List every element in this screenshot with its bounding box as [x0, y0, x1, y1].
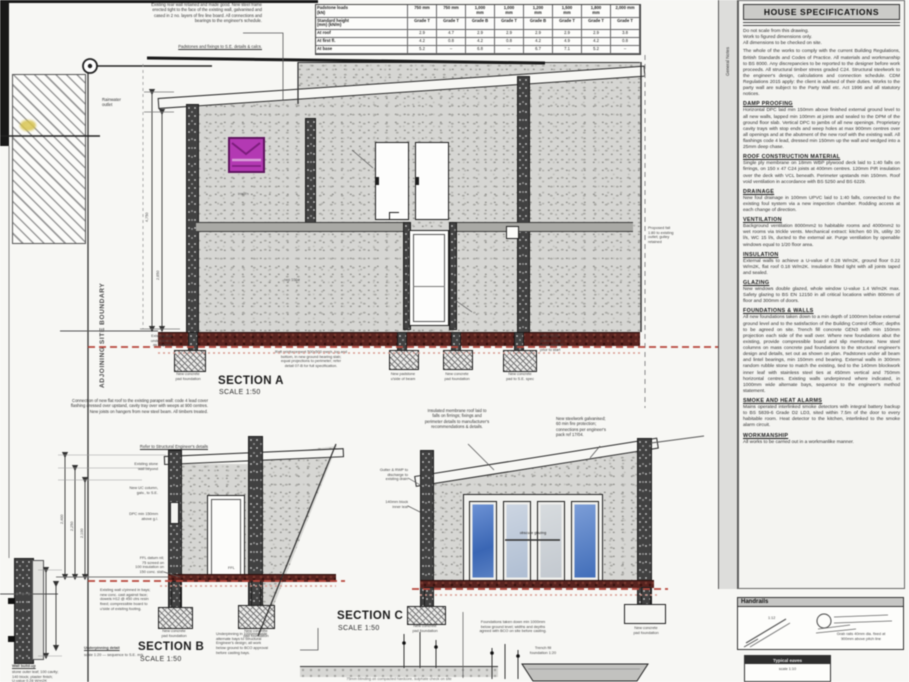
spec-paragraph: Mains operated interlinked smoke detecto… — [743, 405, 900, 430]
slab-note: Raft reinforcement 500x500 mesh, top and… — [252, 350, 370, 369]
underpin-wall-strip — [14, 558, 34, 664]
fall-note: Proposed fall 1:80 to existing outlet; g… — [648, 226, 714, 245]
handrail-detail-box: Handrails 1:12 Grab rails 40mm dia. fixe… — [737, 597, 904, 650]
table-row: At roof2.94.72.92.92.92.92.93.8 — [316, 30, 640, 38]
notes-spine: General Notes — [718, 0, 738, 589]
underpin-screed-strip — [32, 560, 44, 660]
spec-heading: WORKMANSHIP — [743, 433, 900, 439]
spec-paragraph: All new foundations taken down to a min … — [743, 315, 900, 395]
table-row: At base5.2–6.8–6.77.15.2– — [316, 46, 640, 54]
pad-foundation — [238, 605, 275, 629]
glazed-panel-4 — [571, 501, 599, 581]
table-cell: 0.8 — [611, 38, 640, 46]
spec-heading: ROOF CONSTRUCTION MATERIAL — [743, 154, 900, 160]
table-row: Padstone loads (kN)750 mm750 mm1,000 mm1… — [316, 5, 640, 18]
spec-paragraph: Background ventilation 8000mm2 to habita… — [743, 224, 900, 249]
pad-caption: New concrete pad foundation — [146, 629, 202, 638]
table-cell: 4.2 — [466, 38, 495, 46]
door-panel — [409, 230, 449, 326]
section-c-window-band — [463, 494, 603, 584]
table-cell: 5.2 — [582, 46, 611, 54]
scan-edge-left — [0, 0, 9, 146]
dim-label: 2,100 — [80, 512, 85, 538]
table-cell: 1,000 mm — [466, 5, 495, 18]
ground-band — [300, 666, 498, 677]
rwp-tag: rwp 100ø — [284, 278, 318, 283]
pad-foundation — [443, 350, 473, 370]
section-c-note-2: New steelwork galvanised; 60 min fire pr… — [556, 416, 662, 438]
leader-note: DPC min 150mm above g.l. — [86, 512, 158, 521]
table-cell: At roof — [316, 30, 408, 38]
section-b-note: Connection of new flat roof to the exist… — [62, 398, 208, 414]
highlighted-beam — [228, 137, 265, 173]
leader-note: Existing stone wall beyond — [86, 462, 158, 471]
table-cell: 4.9 — [553, 38, 582, 46]
section-a-window-1 — [375, 142, 409, 220]
datum-note: +FFL 00.00 (datum); site levels verified… — [540, 334, 588, 353]
table-cell: Grade T — [408, 18, 437, 31]
table-cell: 2.9 — [466, 30, 495, 38]
spec-title: HOUSE SPECIFICATIONS — [743, 4, 900, 20]
spine-label: General Notes — [725, 6, 730, 76]
frame-note-ref: Padstones and fixings to S.E. details & … — [146, 44, 262, 49]
section-b-door — [207, 495, 245, 579]
table-cell: 2.9 — [524, 30, 553, 38]
spec-general: The whole of the works to comply with th… — [743, 49, 900, 98]
dim-label: 4,750 — [145, 192, 150, 222]
spec-paragraph: Single ply membrane on 18mm WBP plywood … — [743, 161, 900, 186]
eaves-box-line: scale 1:10 — [745, 667, 830, 672]
section-a-column-right — [517, 76, 530, 334]
adjoining-boundary-label: ADJOINING SITE BOUNDARY — [99, 198, 106, 388]
highlight-dot — [20, 120, 36, 131]
floor-buildup-note: FFL datum nil; 75 screed on 100 insulati… — [92, 556, 164, 575]
leader-note: 140mm block inner leaf — [342, 500, 408, 509]
column-stub — [397, 332, 407, 352]
title-rule — [743, 22, 900, 26]
pad-caption: New concrete pad foundation — [429, 372, 485, 381]
leader-note: New UC column, galv., to S.E. — [86, 486, 158, 495]
column-stub — [188, 332, 198, 352]
table-cell: Grade B — [466, 18, 495, 31]
underpin-detail-note: Existing wall u'pinned in bays; new conc… — [100, 588, 212, 612]
existing-wall-hatch — [12, 74, 86, 244]
table-cell: – — [437, 46, 466, 54]
frame-note: Existing rear wall retained and made goo… — [146, 2, 262, 24]
table-cell: 1,200 mm — [524, 5, 553, 18]
table-row: Standard height (mm) (kN/m)Grade TGrade … — [316, 18, 640, 31]
table-cell: Grade T — [582, 18, 611, 31]
foundation-note: Foundations taken down min 1000mm below … — [450, 620, 576, 634]
pad-foundation — [407, 606, 446, 625]
window-step — [389, 212, 399, 219]
column-stub — [514, 332, 524, 352]
pad-caption: New concrete pad to S.E. spec — [491, 372, 549, 381]
table-cell: 5.2 — [408, 46, 437, 54]
pad-foundation — [503, 350, 537, 372]
handrail-caption: Grab rails 40mm dia. fixed at 900mm abov… — [822, 632, 900, 641]
fixing-bolt — [8, 636, 15, 642]
table-cell: – — [611, 46, 640, 54]
column-pocket — [170, 502, 179, 524]
section-a-column-mid — [305, 118, 316, 226]
table-cell: 7.1 — [553, 46, 582, 54]
ffl-tag: FFL — [228, 566, 235, 571]
table-cell: 4.2 — [582, 38, 611, 46]
spec-paragraph: All works to be carried out in a workman… — [743, 440, 900, 446]
trench-caption: Trench fill foundation 1:20 — [516, 646, 570, 655]
dim-label: 2,400 — [60, 498, 65, 524]
pad-caption: New concrete pad foundation — [618, 626, 674, 635]
table-cell: 2.9 — [582, 30, 611, 38]
table-row: At first fl.4.20.84.20.84.24.94.20.8 — [316, 38, 640, 46]
table-cell: Standard height (mm) (kN/m) — [316, 18, 408, 31]
pad-foundation — [389, 350, 419, 370]
glazed-panel-2 — [503, 501, 531, 581]
specification-panel: HOUSE SPECIFICATIONS Do not scale from t… — [738, 0, 905, 589]
pad-caption: New concrete pad foundation — [160, 372, 216, 381]
table-cell: 1,000 mm — [495, 5, 524, 18]
glazed-panel-3 — [537, 501, 565, 581]
vent-box — [506, 226, 519, 239]
spec-paragraph: External walls to achieve a U-value of 0… — [743, 259, 900, 277]
table-cell: At base — [316, 46, 408, 54]
table-cell: 4.2 — [408, 38, 437, 46]
table-cell: 1,500 mm — [553, 5, 582, 18]
corner-note-title: Wall build-up — [12, 664, 100, 669]
spec-heading: FOUNDATIONS & WALLS — [743, 308, 900, 314]
section-a-floor-band-left — [196, 222, 403, 232]
eaves-box-title: Typical eaves — [745, 656, 830, 664]
table-cell: 3.8 — [611, 30, 640, 38]
spec-intro: Do not scale from this drawing. Work to … — [743, 29, 900, 47]
table-cell: 750 mm — [437, 5, 466, 18]
underpin-caption-title: Underpinning detail — [84, 646, 212, 651]
beam-bracing — [230, 139, 263, 171]
spec-heading: DRAINAGE — [743, 189, 900, 195]
table-cell: Grade B — [524, 18, 553, 31]
table-cell: 6.8 — [466, 46, 495, 54]
table-cell: Grade T — [495, 18, 524, 31]
ground-note: 75mm blinding on compacted hardcore, sul… — [300, 677, 498, 682]
table-cell: 1,800 mm — [582, 5, 611, 18]
padstone-loads-table: Padstone loads (kN)750 mm750 mm1,000 mm1… — [315, 4, 641, 55]
door-rail — [413, 286, 445, 287]
table-cell: 2.9 — [408, 30, 437, 38]
drawing-sheet: Rainwater outlet ADJOINING SITE BOUNDARY… — [0, 0, 909, 682]
section-a-title: SECTION A — [218, 375, 284, 387]
column-stub — [251, 581, 261, 607]
pad-foundation — [174, 350, 206, 372]
door-jamb-right — [449, 222, 457, 330]
underpin-note: Existing wall underpinned as required — [124, 334, 172, 348]
pad-caption: New padstone u'side of beam — [375, 372, 431, 381]
section-a-floor-band-right — [455, 222, 633, 232]
window-notch — [415, 177, 419, 185]
spec-paragraph: New windows double glazed, whole window … — [743, 287, 900, 305]
table-cell: 2.9 — [495, 30, 524, 38]
eaves-detail-box: Typical eaves scale 1:10 — [744, 655, 831, 682]
dim-label: 2,650 — [156, 250, 161, 280]
column-stub — [451, 332, 461, 352]
spec-paragraph: Horizontal DPC laid min 150mm above fini… — [743, 108, 900, 151]
leader-note: Gutter & RWP to discharge to existing dr… — [342, 468, 408, 482]
table-cell: 4.7 — [437, 30, 466, 38]
section-a-door — [403, 222, 455, 328]
table-cell: 750 mm — [408, 5, 437, 18]
section-a-window-2 — [415, 142, 449, 220]
insulation-tag: insul'n — [238, 192, 268, 197]
underpinning-note: Underpinning in 1000mm wide alternate ba… — [216, 632, 336, 656]
table-cell: Padstone loads (kN) — [316, 5, 408, 18]
dim-label: 2,250 — [70, 505, 75, 531]
rainwater-note: Rainwater outlet — [102, 97, 146, 108]
table-cell: 4.2 — [524, 38, 553, 46]
table-cell: At first fl. — [316, 38, 408, 46]
table-cell: 0.8 — [495, 38, 524, 46]
spec-heading: GLAZING — [743, 280, 900, 286]
section-c-slab — [420, 580, 654, 588]
pad-caption: New concrete pad foundation — [396, 624, 454, 633]
section-a-column-left — [186, 104, 199, 334]
table-cell: 2.9 — [553, 30, 582, 38]
section-c-scale: SCALE 1:50 — [338, 625, 380, 632]
spec-heading: SMOKE AND HEAT ALARMS — [743, 398, 900, 404]
spec-heading: INSULATION — [743, 252, 900, 258]
glazed-panel-1 — [469, 501, 497, 581]
table-cell: Grade T — [611, 18, 640, 31]
section-c-note-1: Insulated membrane roof laid to falls on… — [396, 408, 518, 430]
table-cell: Grade T — [437, 18, 466, 31]
handrail-box-title: Handrails — [738, 598, 903, 607]
table-cell: 2,000 mm — [611, 5, 640, 18]
handrail-sketch — [738, 609, 903, 649]
glazing-tag: obscure glazing — [504, 531, 562, 536]
spec-heading: DAMP PROOFING — [743, 101, 900, 107]
section-b-wall-wing — [261, 446, 337, 630]
table-cell: – — [495, 46, 524, 54]
corner-note: stone outer leaf; 100 cavity; 140 block;… — [12, 670, 100, 682]
handrail-slope-tag: 1:12 — [768, 616, 775, 621]
fixing-bolt — [8, 598, 15, 604]
section-a-scale: SCALE 1:50 — [219, 389, 261, 396]
section-b-note-ref: Refer to Structural Engineer's details — [62, 444, 208, 449]
table-cell: 0.8 — [437, 38, 466, 46]
table-cell: 6.7 — [524, 46, 553, 54]
window-notch — [375, 177, 379, 185]
table-cell: Grade T — [553, 18, 582, 31]
pad-foundation-plain — [624, 604, 666, 624]
spec-sections: DAMP PROOFINGHorizontal DPC laid min 150… — [743, 101, 900, 445]
underpin-caption: scale 1:20 — sequence to S.E. m/s — [84, 653, 212, 658]
spec-heading: VENTILATION — [743, 217, 900, 223]
spec-paragraph: New foul drainage in 100mm UPVC laid to … — [743, 196, 900, 214]
section-c-title: SECTION C — [337, 610, 403, 622]
